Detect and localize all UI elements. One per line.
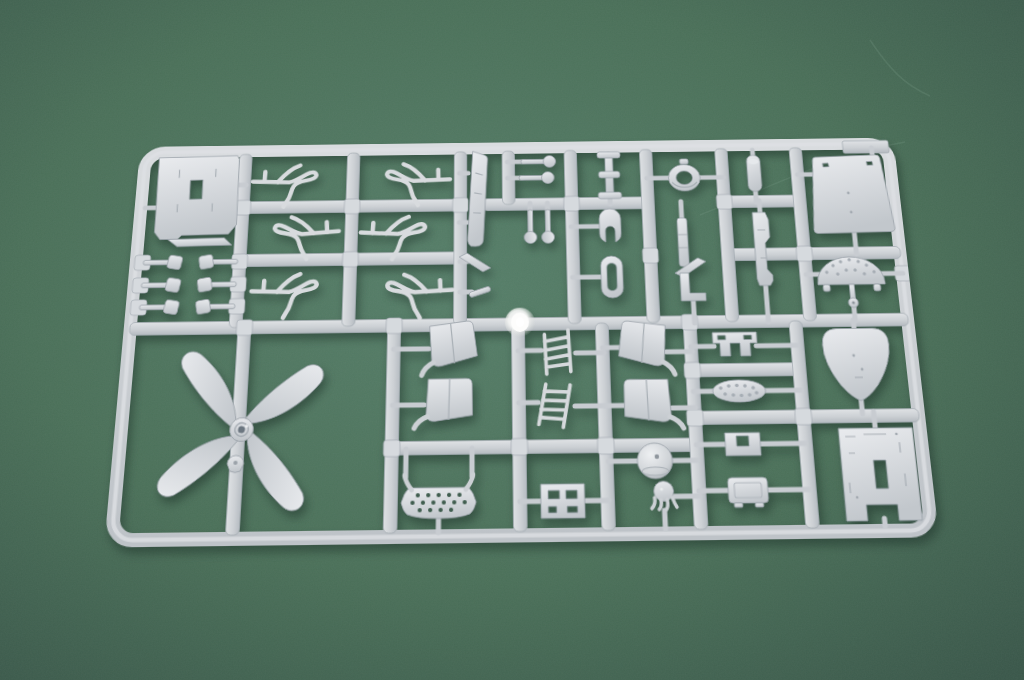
part-gate-stub [874, 412, 876, 430]
part-ovalring [600, 256, 623, 298]
part-rod [746, 155, 762, 191]
runner-pad [716, 194, 732, 209]
part-striplong [467, 151, 488, 246]
part-box [727, 477, 769, 507]
runner-pad [453, 198, 469, 213]
part-gate-stub [693, 299, 694, 323]
part-wire [249, 273, 317, 319]
part-pin [519, 172, 554, 184]
part-gate-stub [759, 443, 805, 444]
part-gate-stub [767, 489, 810, 490]
runner-vertical [454, 152, 467, 325]
part-wire [387, 272, 454, 320]
runner-pad [342, 252, 358, 267]
part-ring [667, 159, 701, 191]
part-uchannel [725, 433, 762, 456]
part-ladder [539, 383, 570, 428]
part-ladder [540, 330, 575, 375]
part-gate-stub [861, 400, 862, 414]
runner-horizontal [728, 246, 902, 260]
part-plate [154, 156, 240, 248]
runner-vertical [383, 326, 401, 534]
runner-pad [642, 248, 658, 263]
runner-vertical [342, 153, 360, 326]
part-ovaldots [712, 380, 766, 403]
part-gate-stub [756, 345, 797, 346]
part-gate-stub [854, 233, 856, 254]
part-lbr [680, 273, 706, 301]
part-strip [677, 218, 689, 267]
part-panel [838, 428, 922, 522]
part-gate-stub [665, 510, 666, 528]
part-bar [469, 286, 491, 298]
runner-pad [564, 196, 580, 211]
runner-horizontal [692, 363, 800, 377]
runner-pad [383, 440, 400, 457]
part-trap [807, 155, 895, 234]
part-gate-stub [681, 201, 682, 219]
part-pod [599, 209, 622, 243]
part-pin [521, 156, 556, 168]
runner-pad [795, 408, 813, 425]
part-gate-stub [765, 283, 768, 323]
part-seat [621, 375, 684, 432]
runner-pad [386, 318, 402, 334]
runner-vertical [639, 150, 660, 323]
runner-pad [796, 246, 813, 261]
part-fan [816, 257, 888, 308]
runner-pad [344, 199, 360, 214]
runner-vertical [715, 149, 739, 322]
runner-horizontal [724, 195, 800, 208]
runner-pad [236, 320, 253, 336]
part-heart [821, 328, 895, 401]
part-ovalholes [401, 475, 476, 520]
injection-gate-shine [505, 308, 535, 338]
part-pin [524, 210, 537, 244]
part-gate-stub [884, 518, 885, 526]
photo-model-kit-sprue [0, 0, 1024, 680]
runner-pad [597, 437, 614, 454]
runner-vertical [564, 150, 581, 323]
runner-pad [511, 438, 528, 455]
frame-corner-tab [842, 140, 889, 153]
part-hbracket [712, 332, 758, 356]
part-spool [597, 152, 622, 199]
part-acorn [651, 481, 677, 509]
part-slotbracket [541, 484, 586, 519]
runner-pad [684, 362, 701, 378]
sprue [104, 138, 939, 548]
part-pin [541, 209, 554, 243]
runner-pad [686, 410, 703, 427]
